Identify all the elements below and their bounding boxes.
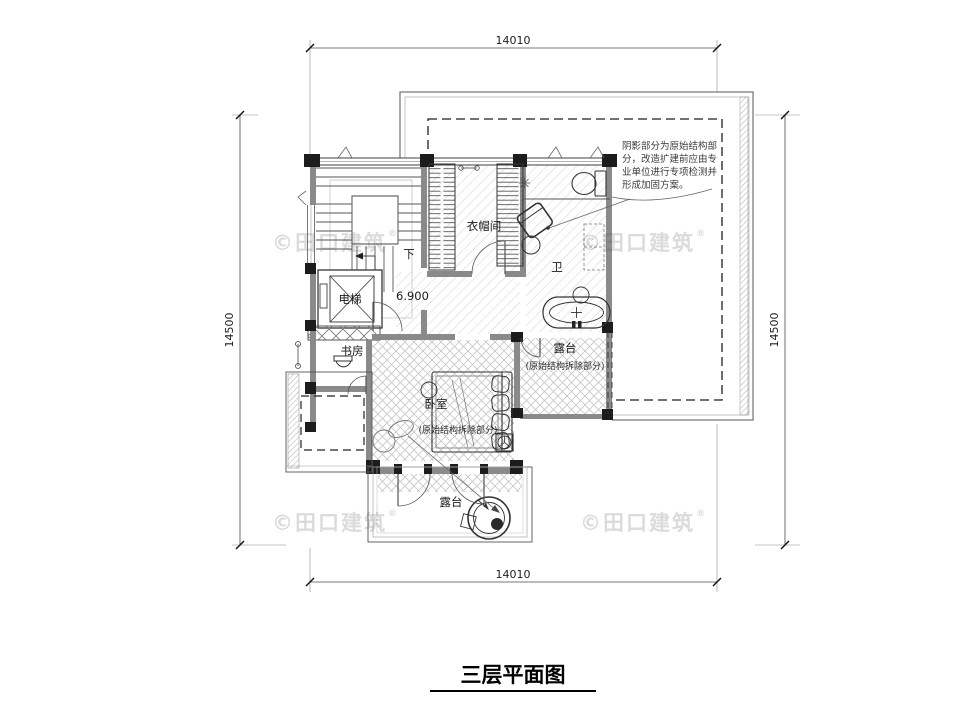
dim-bottom: 14010 bbox=[496, 568, 531, 581]
svg-text:®: ® bbox=[388, 229, 397, 239]
note-line-1: 阴影部分为原始结构部 bbox=[622, 140, 717, 152]
watermark-1: ©田口建筑 bbox=[272, 231, 387, 255]
balustrade-strip bbox=[308, 326, 380, 340]
label-terrace-bottom: 露台 bbox=[440, 495, 463, 509]
title-text: 三层平面图 bbox=[461, 663, 566, 687]
dim-right: 14500 bbox=[768, 313, 781, 348]
label-bedroom: 卧室 bbox=[425, 397, 448, 411]
note-line-4: 形成加固方案。 bbox=[622, 179, 689, 191]
label-elevator: 电梯 bbox=[339, 292, 362, 306]
bottom-terrace-demolition-hatch bbox=[378, 474, 522, 492]
note-line-2: 分，改造扩建前应由专 bbox=[622, 153, 717, 165]
note-block: 阴影部分为原始结构部 分，改造扩建前应由专 业单位进行专项检测并 形成加固方案。 bbox=[622, 140, 718, 191]
svg-text:®: ® bbox=[696, 229, 705, 239]
dim-left: 14500 bbox=[223, 313, 236, 348]
showerhead-icon bbox=[519, 178, 530, 189]
title-underline bbox=[430, 690, 596, 692]
wardrobe-left bbox=[429, 164, 455, 270]
label-down: 下 bbox=[403, 247, 415, 261]
note-line-3: 业单位进行专项检测并 bbox=[622, 166, 718, 178]
watermark-2: ©田口建筑 bbox=[580, 231, 695, 255]
label-demolish-bedroom: (原始结构拆除部分) bbox=[418, 424, 497, 436]
drawing-title: 三层平面图 bbox=[430, 663, 596, 692]
floorplan-drawing: 14010 14010 14500 14500 bbox=[0, 0, 961, 722]
floorplan-sheet: 14010 14010 14500 14500 bbox=[0, 0, 961, 722]
label-demolish-mid: (原始结构拆除部分) bbox=[525, 360, 604, 372]
svg-text:®: ® bbox=[388, 509, 397, 519]
svg-text:®: ® bbox=[696, 509, 705, 519]
watermark-4: ©田口建筑 bbox=[580, 511, 695, 535]
label-study: 书房 bbox=[341, 344, 364, 358]
dim-top: 14010 bbox=[496, 34, 531, 47]
label-terrace-mid: 露台 bbox=[554, 341, 577, 355]
label-bathroom: 卫 bbox=[551, 260, 563, 274]
label-level: 6.900 bbox=[396, 289, 429, 303]
watermark-3: ©田口建筑 bbox=[272, 511, 387, 535]
label-cloakroom: 衣帽间 bbox=[467, 219, 502, 233]
